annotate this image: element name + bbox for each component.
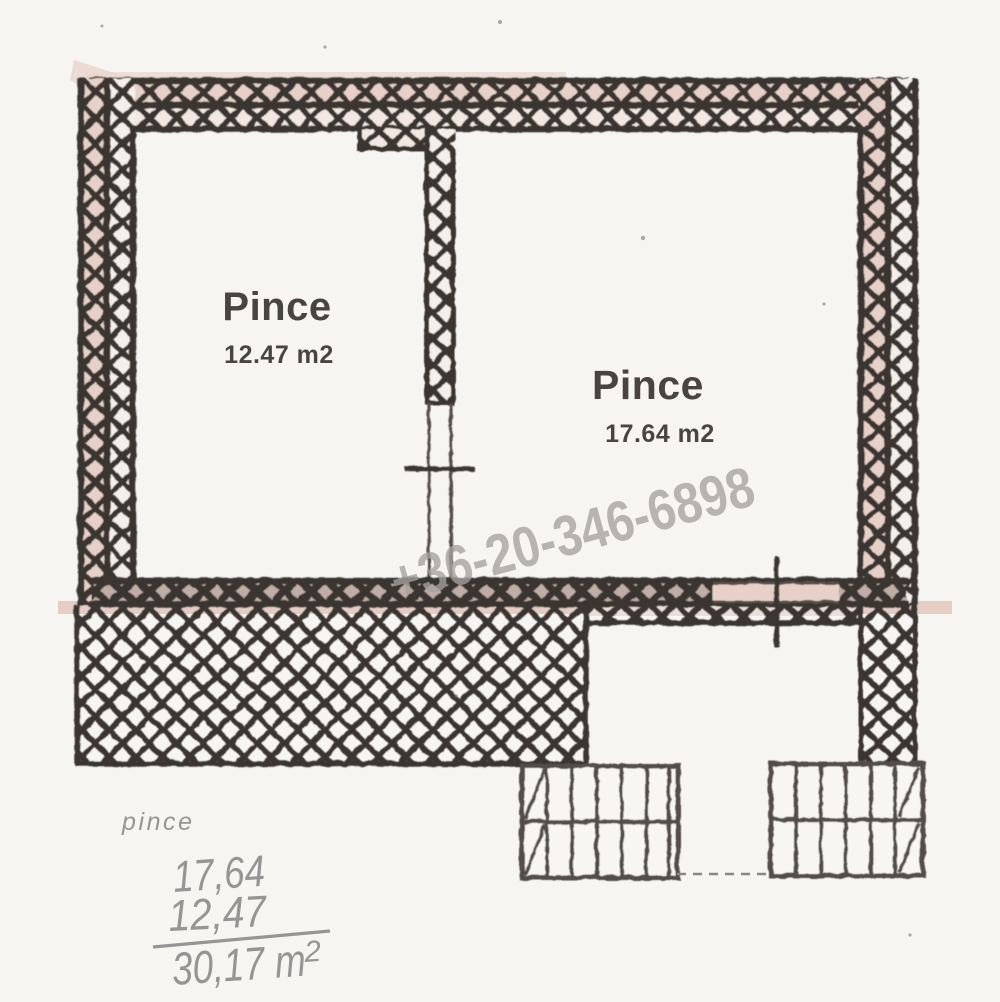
svg-text:30,17 m: 30,17 m	[170, 934, 307, 995]
svg-text:12,47: 12,47	[167, 887, 269, 941]
svg-text:Pince: Pince	[592, 362, 704, 408]
svg-text:2: 2	[302, 935, 322, 969]
svg-text:Pince: Pince	[222, 285, 331, 329]
svg-text:12.47 m2: 12.47 m2	[224, 341, 334, 369]
svg-text:17.64 m2: 17.64 m2	[605, 420, 715, 448]
svg-text:pince: pince	[121, 808, 192, 836]
